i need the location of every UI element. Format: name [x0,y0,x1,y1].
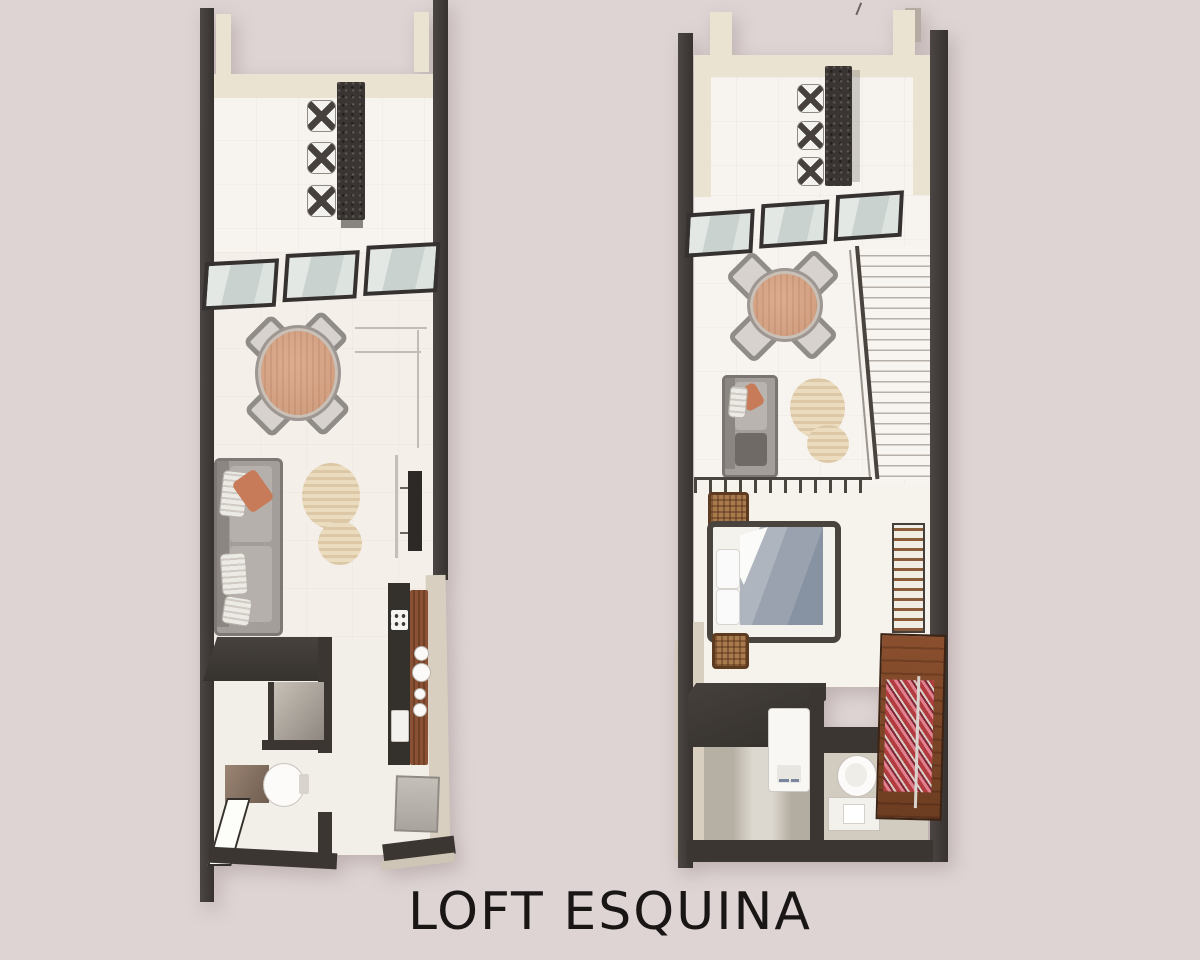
window-pane-3 [363,242,440,296]
bar-stool-2 [307,142,336,174]
bar-stool-1 [307,100,336,132]
bed-pillow-2 [716,589,740,625]
toilet-tank [299,774,309,794]
fridge [394,775,440,833]
lintel-band [694,55,930,77]
breakfast-bar [337,82,365,220]
stove [391,610,408,630]
page-title: LOFT ESQUINA [20,882,1200,942]
bar-stool-2 [797,121,824,150]
toilet-seat [845,763,867,787]
tv-bracket-2 [400,532,408,534]
dining-table [255,325,341,421]
bar-stool-3 [307,185,336,217]
breakfast-bar [825,66,852,186]
door-mark-2 [355,351,421,353]
pilaster-right [414,12,429,72]
wall-left [200,8,214,902]
dining-table [747,268,823,342]
lintel-band [214,74,434,98]
sofa [722,375,778,478]
sofa-pillow-white [728,385,749,418]
sofa-pillow-2 [220,552,249,596]
bath-wall-bottom-inner [262,740,332,750]
window-pane-1 [202,258,279,310]
bed-pillow-1 [716,549,740,589]
bar-stool-3 [797,157,824,186]
rug-small-circle [807,425,849,463]
bath-partition-vertical [810,688,824,845]
clothes-rack [892,523,925,633]
rug-small-circle [318,521,362,565]
window-pane-3 [834,190,904,241]
bar-shadow [852,70,860,182]
side-band-right [913,77,930,195]
tv-panel [408,471,422,551]
tv-shelf-line [395,455,398,558]
plan-right [675,0,960,880]
kitchen-sink-unit [391,710,409,742]
partition-hatched [694,477,872,493]
shower-control-1 [779,779,789,782]
rug-large-circle [302,463,360,529]
sofa [214,458,283,636]
plate-1 [414,688,426,700]
sink-bowl-1 [414,646,429,661]
vanity-sink [843,804,865,824]
shower-unit [768,708,810,792]
double-bed [707,521,841,643]
wardrobe-clothes [883,679,934,792]
sofa-cushion-dark [735,433,767,466]
window-pane-1 [685,209,755,258]
basket-foot [712,633,749,669]
plate-2 [413,703,427,717]
pilaster-left [216,14,231,76]
door-mark-3 [417,330,419,448]
shower-glass-cabin [268,682,324,742]
wall-bottom [687,840,933,862]
door-mark-1 [355,327,427,329]
bar-shadow [341,219,363,228]
side-band-left [694,77,711,197]
shower-control-2 [791,779,799,782]
sink-bowl-2 [412,663,431,682]
bath-wall-right-lower [318,812,332,858]
plan-left [195,0,465,915]
floorplan-poster: LOFT ESQUINA [0,0,1200,960]
window-pane-2 [759,200,829,249]
wardrobe [876,633,947,821]
closet-platform [203,637,331,681]
window-pane-2 [282,250,359,302]
bath-vanity [828,797,880,831]
tv-bracket-1 [400,487,408,489]
bar-stool-1 [797,84,824,113]
sofa-pillow-3 [221,595,253,627]
